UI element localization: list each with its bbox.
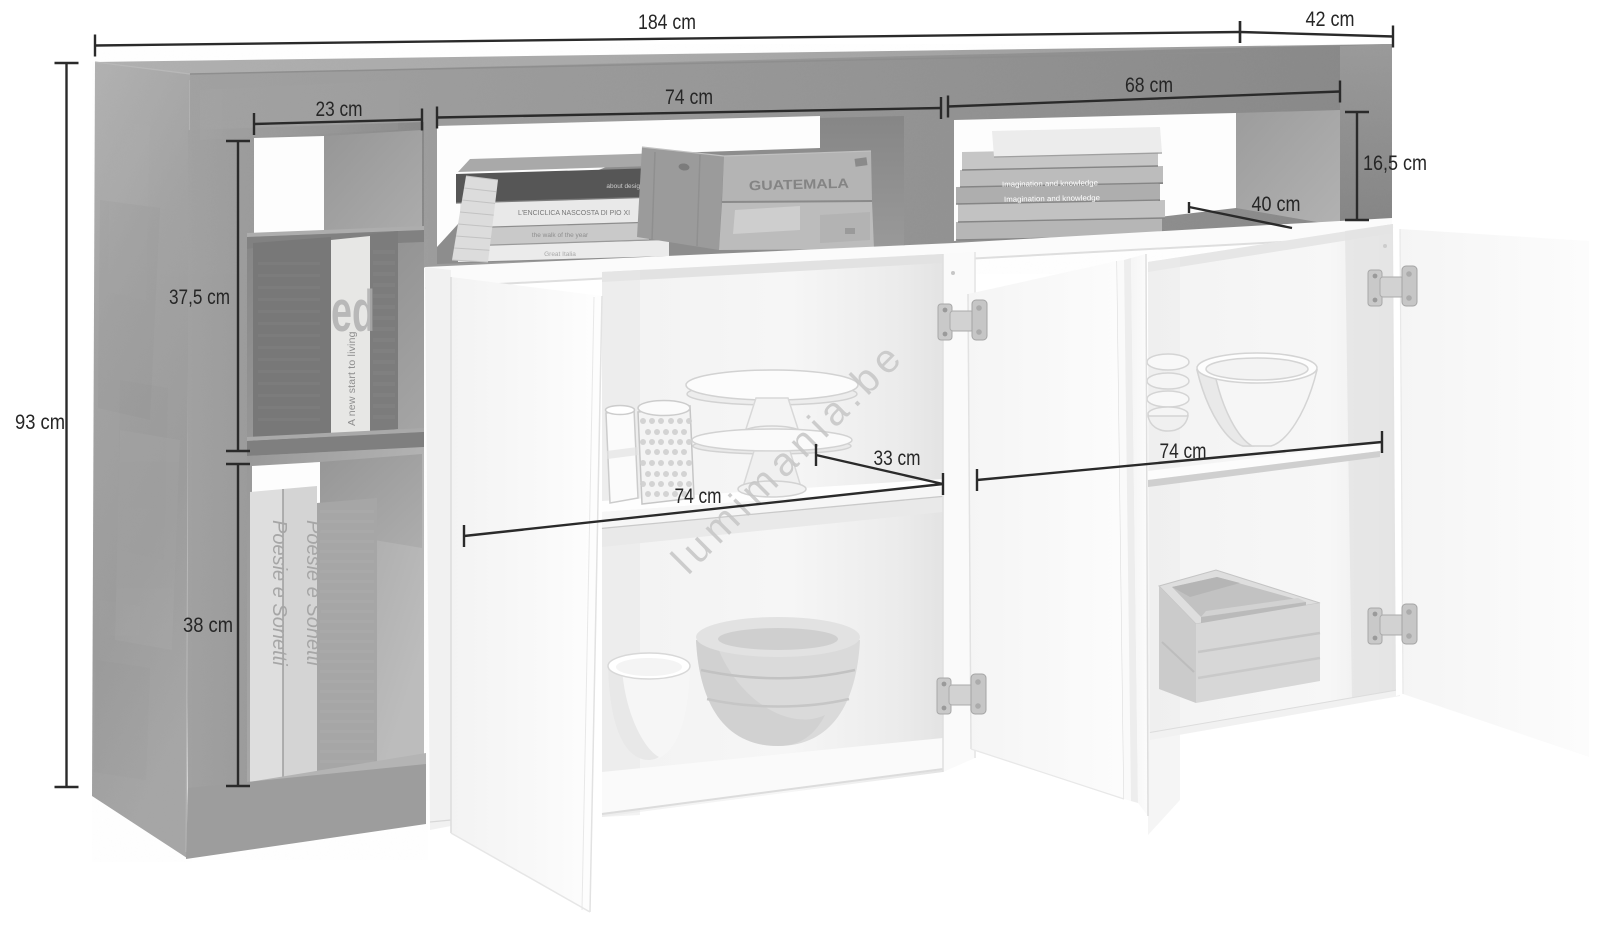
svg-text:Poesie e Sonetti: Poesie e Sonetti — [268, 520, 290, 666]
svg-text:33 cm: 33 cm — [874, 447, 921, 470]
svg-text:L’ENCICLICA NASCOSTA DI PIO XI: L’ENCICLICA NASCOSTA DI PIO XI — [518, 208, 630, 217]
svg-text:GUATEMALA: GUATEMALA — [749, 176, 850, 194]
svg-text:74 cm: 74 cm — [675, 485, 722, 508]
svg-text:about design: about design — [606, 183, 644, 190]
svg-text:23 cm: 23 cm — [316, 98, 363, 121]
svg-text:Imagination and knowledge: Imagination and knowledge — [1002, 178, 1098, 189]
svg-text:184 cm: 184 cm — [638, 11, 696, 34]
svg-text:74 cm: 74 cm — [665, 86, 713, 109]
svg-text:68 cm: 68 cm — [1125, 74, 1173, 97]
svg-text:37,5 cm: 37,5 cm — [169, 286, 230, 309]
svg-text:A new start to living: A new start to living — [346, 331, 358, 426]
svg-text:40 cm: 40 cm — [1252, 193, 1301, 216]
svg-text:74 cm: 74 cm — [1160, 440, 1207, 463]
svg-text:93 cm: 93 cm — [15, 411, 65, 434]
svg-text:42 cm: 42 cm — [1306, 8, 1355, 31]
svg-text:38 cm: 38 cm — [183, 614, 233, 637]
svg-text:Great Italia: Great Italia — [544, 251, 576, 258]
svg-text:16,5 cm: 16,5 cm — [1363, 152, 1427, 175]
svg-text:Imagination and knowledge: Imagination and knowledge — [1004, 193, 1100, 204]
svg-text:the walk of the year: the walk of the year — [532, 232, 589, 239]
svg-text:Poesie e Sonetti: Poesie e Sonetti — [302, 520, 324, 666]
